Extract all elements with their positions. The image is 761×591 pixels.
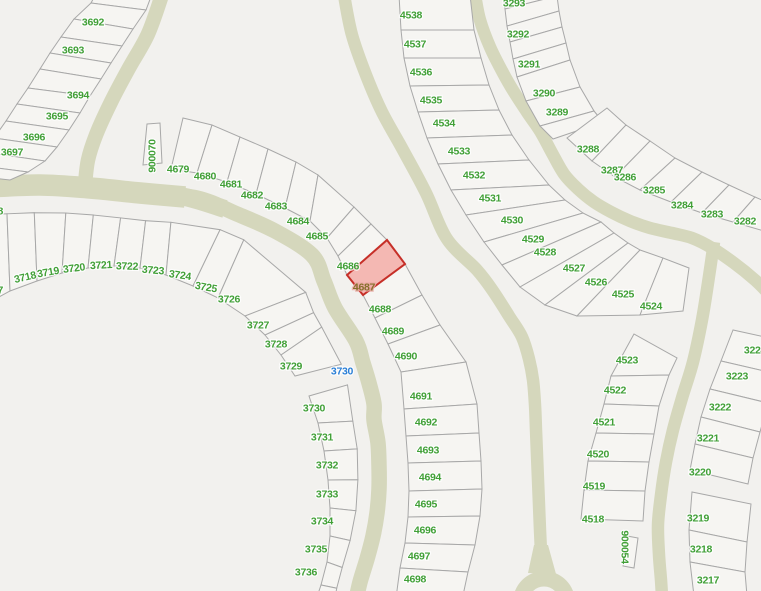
svg-text:3223: 3223 xyxy=(726,371,749,383)
svg-text:4519: 4519 xyxy=(583,481,606,493)
svg-text:4688: 4688 xyxy=(369,304,392,316)
svg-text:3289: 3289 xyxy=(546,107,569,119)
svg-text:4523: 4523 xyxy=(616,355,639,367)
svg-text:3694: 3694 xyxy=(67,90,90,102)
svg-text:4530: 4530 xyxy=(501,215,524,227)
svg-text:4528: 4528 xyxy=(534,247,557,259)
svg-text:4680: 4680 xyxy=(194,171,217,183)
svg-text:3221: 3221 xyxy=(697,433,720,445)
svg-text:3730: 3730 xyxy=(303,403,326,415)
svg-text:900054: 900054 xyxy=(618,530,630,564)
svg-text:3217: 3217 xyxy=(697,575,720,587)
svg-text:3220: 3220 xyxy=(689,467,712,479)
svg-text:3717: 3717 xyxy=(0,285,4,297)
svg-text:4679: 4679 xyxy=(167,164,190,176)
svg-text:3697: 3697 xyxy=(1,147,24,159)
svg-text:4686: 4686 xyxy=(337,261,360,273)
svg-text:3283: 3283 xyxy=(701,209,724,221)
svg-text:3282: 3282 xyxy=(734,216,757,228)
svg-text:3728: 3728 xyxy=(265,339,288,351)
svg-text:4693: 4693 xyxy=(417,445,440,457)
svg-text:3733: 3733 xyxy=(316,489,339,501)
svg-text:4689: 4689 xyxy=(382,326,405,338)
svg-text:4696: 4696 xyxy=(414,525,437,537)
svg-text:3731: 3731 xyxy=(311,432,334,444)
svg-text:3219: 3219 xyxy=(687,513,710,525)
svg-text:3722: 3722 xyxy=(116,260,139,272)
svg-text:4525: 4525 xyxy=(612,289,635,301)
svg-text:3721: 3721 xyxy=(90,259,113,272)
svg-text:4531: 4531 xyxy=(479,193,502,205)
svg-text:3727: 3727 xyxy=(247,320,270,332)
svg-text:4537: 4537 xyxy=(404,39,427,51)
svg-text:4683: 4683 xyxy=(265,201,288,213)
svg-text:3693: 3693 xyxy=(62,45,85,57)
svg-text:4697: 4697 xyxy=(408,551,431,563)
svg-text:4691: 4691 xyxy=(410,391,433,403)
svg-text:4521: 4521 xyxy=(593,417,616,429)
svg-text:4692: 4692 xyxy=(415,417,438,429)
svg-text:3696: 3696 xyxy=(23,132,46,144)
svg-text:3286: 3286 xyxy=(614,172,637,184)
svg-text:4522: 4522 xyxy=(604,385,627,397)
svg-text:4534: 4534 xyxy=(433,118,456,130)
svg-text:3692: 3692 xyxy=(82,17,105,29)
svg-text:3218: 3218 xyxy=(690,544,713,556)
svg-text:4681: 4681 xyxy=(220,179,243,191)
svg-text:3723: 3723 xyxy=(141,264,165,278)
svg-text:4526: 4526 xyxy=(585,277,608,289)
svg-text:3224: 3224 xyxy=(744,345,761,357)
svg-text:3288: 3288 xyxy=(577,144,600,156)
svg-text:4536: 4536 xyxy=(410,67,433,79)
svg-text:3695: 3695 xyxy=(46,111,69,123)
svg-text:3291: 3291 xyxy=(518,59,541,71)
svg-text:4518: 4518 xyxy=(582,514,605,526)
svg-text:3284: 3284 xyxy=(671,200,694,212)
svg-text:3290: 3290 xyxy=(533,88,556,100)
svg-text:3734: 3734 xyxy=(311,516,334,528)
svg-text:3735: 3735 xyxy=(305,544,328,556)
svg-text:4684: 4684 xyxy=(287,216,310,228)
svg-text:3732: 3732 xyxy=(316,460,339,472)
svg-text:4685: 4685 xyxy=(306,231,329,243)
svg-text:3726: 3726 xyxy=(218,294,241,306)
svg-text:900070: 900070 xyxy=(147,139,159,173)
svg-text:4698: 4698 xyxy=(404,574,427,586)
svg-text:3698: 3698 xyxy=(0,206,4,218)
svg-text:4687: 4687 xyxy=(353,282,376,294)
svg-text:3729: 3729 xyxy=(280,361,303,373)
svg-text:4538: 4538 xyxy=(400,10,423,22)
svg-text:3292: 3292 xyxy=(507,29,530,41)
svg-text:4682: 4682 xyxy=(241,190,264,202)
svg-text:4690: 4690 xyxy=(395,351,418,363)
svg-text:3736: 3736 xyxy=(295,567,318,579)
svg-text:3293: 3293 xyxy=(503,0,526,10)
svg-text:4535: 4535 xyxy=(420,95,443,107)
svg-text:3285: 3285 xyxy=(643,185,666,197)
svg-text:3730: 3730 xyxy=(331,366,354,378)
svg-text:4529: 4529 xyxy=(522,234,545,246)
svg-text:3222: 3222 xyxy=(709,402,732,414)
svg-text:4520: 4520 xyxy=(587,449,610,461)
svg-text:4527: 4527 xyxy=(563,263,586,275)
svg-text:4532: 4532 xyxy=(463,170,486,182)
svg-text:4533: 4533 xyxy=(448,146,471,158)
svg-text:4695: 4695 xyxy=(415,499,438,511)
svg-text:4694: 4694 xyxy=(419,472,442,484)
svg-text:4524: 4524 xyxy=(640,301,663,313)
